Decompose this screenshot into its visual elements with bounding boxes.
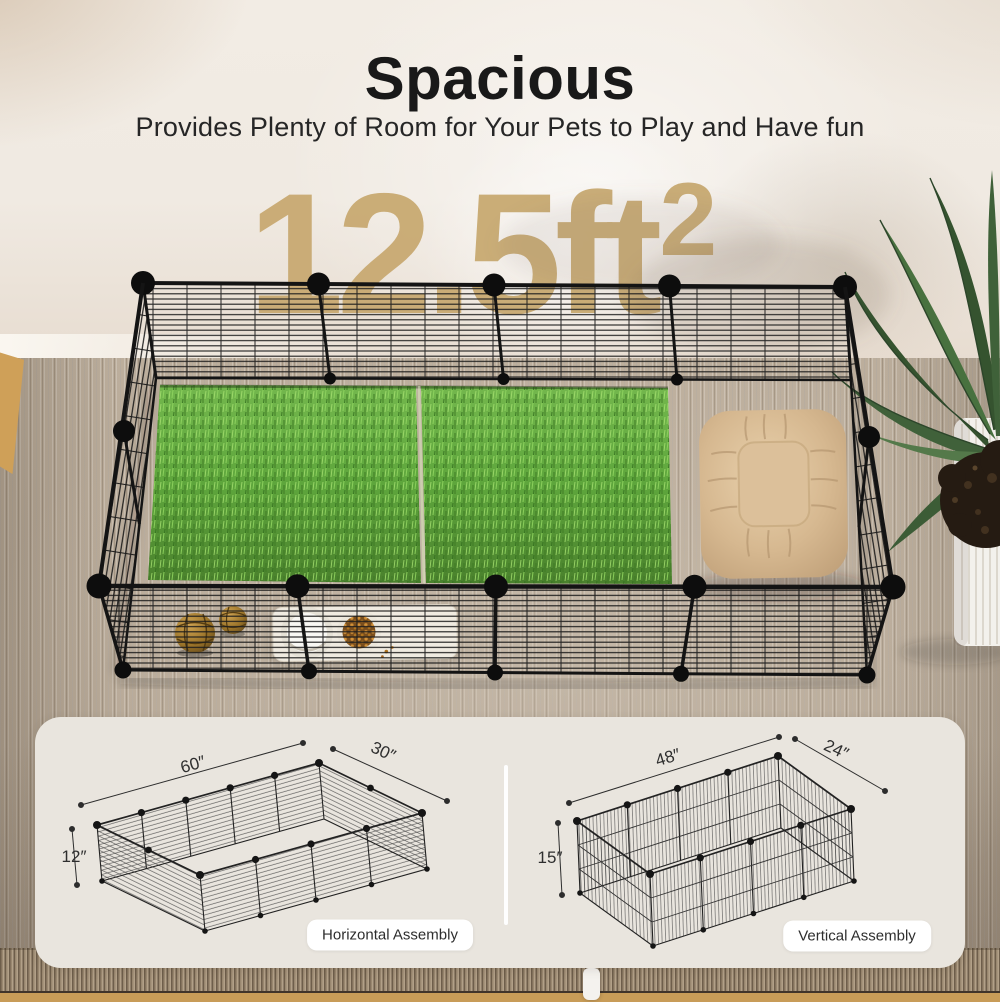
dim-height-vertical: 15″ xyxy=(538,848,563,868)
wall-shadow xyxy=(690,130,1000,370)
page-subtitle: Provides Plenty of Room for Your Pets to… xyxy=(0,112,1000,143)
area-unit: ft xyxy=(555,158,656,350)
area-exponent: 2 xyxy=(659,162,717,278)
area-value: 12.5 xyxy=(248,158,555,350)
page-title: Spacious xyxy=(0,44,1000,113)
dim-height-horizontal: 12″ xyxy=(62,847,87,867)
horizontal-assembly-badge: Horizontal Assembly xyxy=(307,920,473,951)
area-watermark: 12.5ft2 xyxy=(248,168,713,340)
vertical-assembly-badge: Vertical Assembly xyxy=(783,921,931,952)
wood-floor-bottom xyxy=(0,991,1000,1002)
furniture-leg xyxy=(583,968,600,1000)
